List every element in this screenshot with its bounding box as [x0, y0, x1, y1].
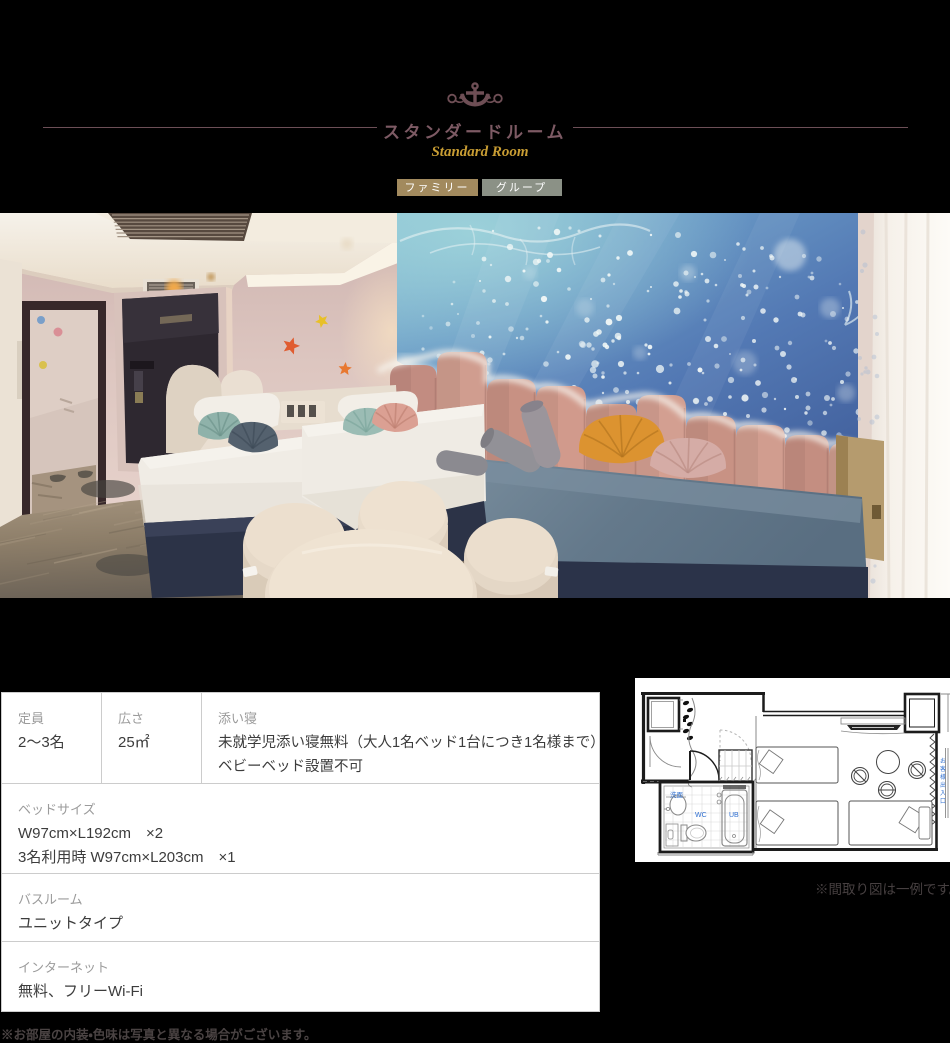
svg-text:洗面: 洗面: [670, 790, 684, 799]
svg-text:WC: WC: [695, 812, 707, 819]
svg-text:UB: UB: [729, 812, 739, 819]
